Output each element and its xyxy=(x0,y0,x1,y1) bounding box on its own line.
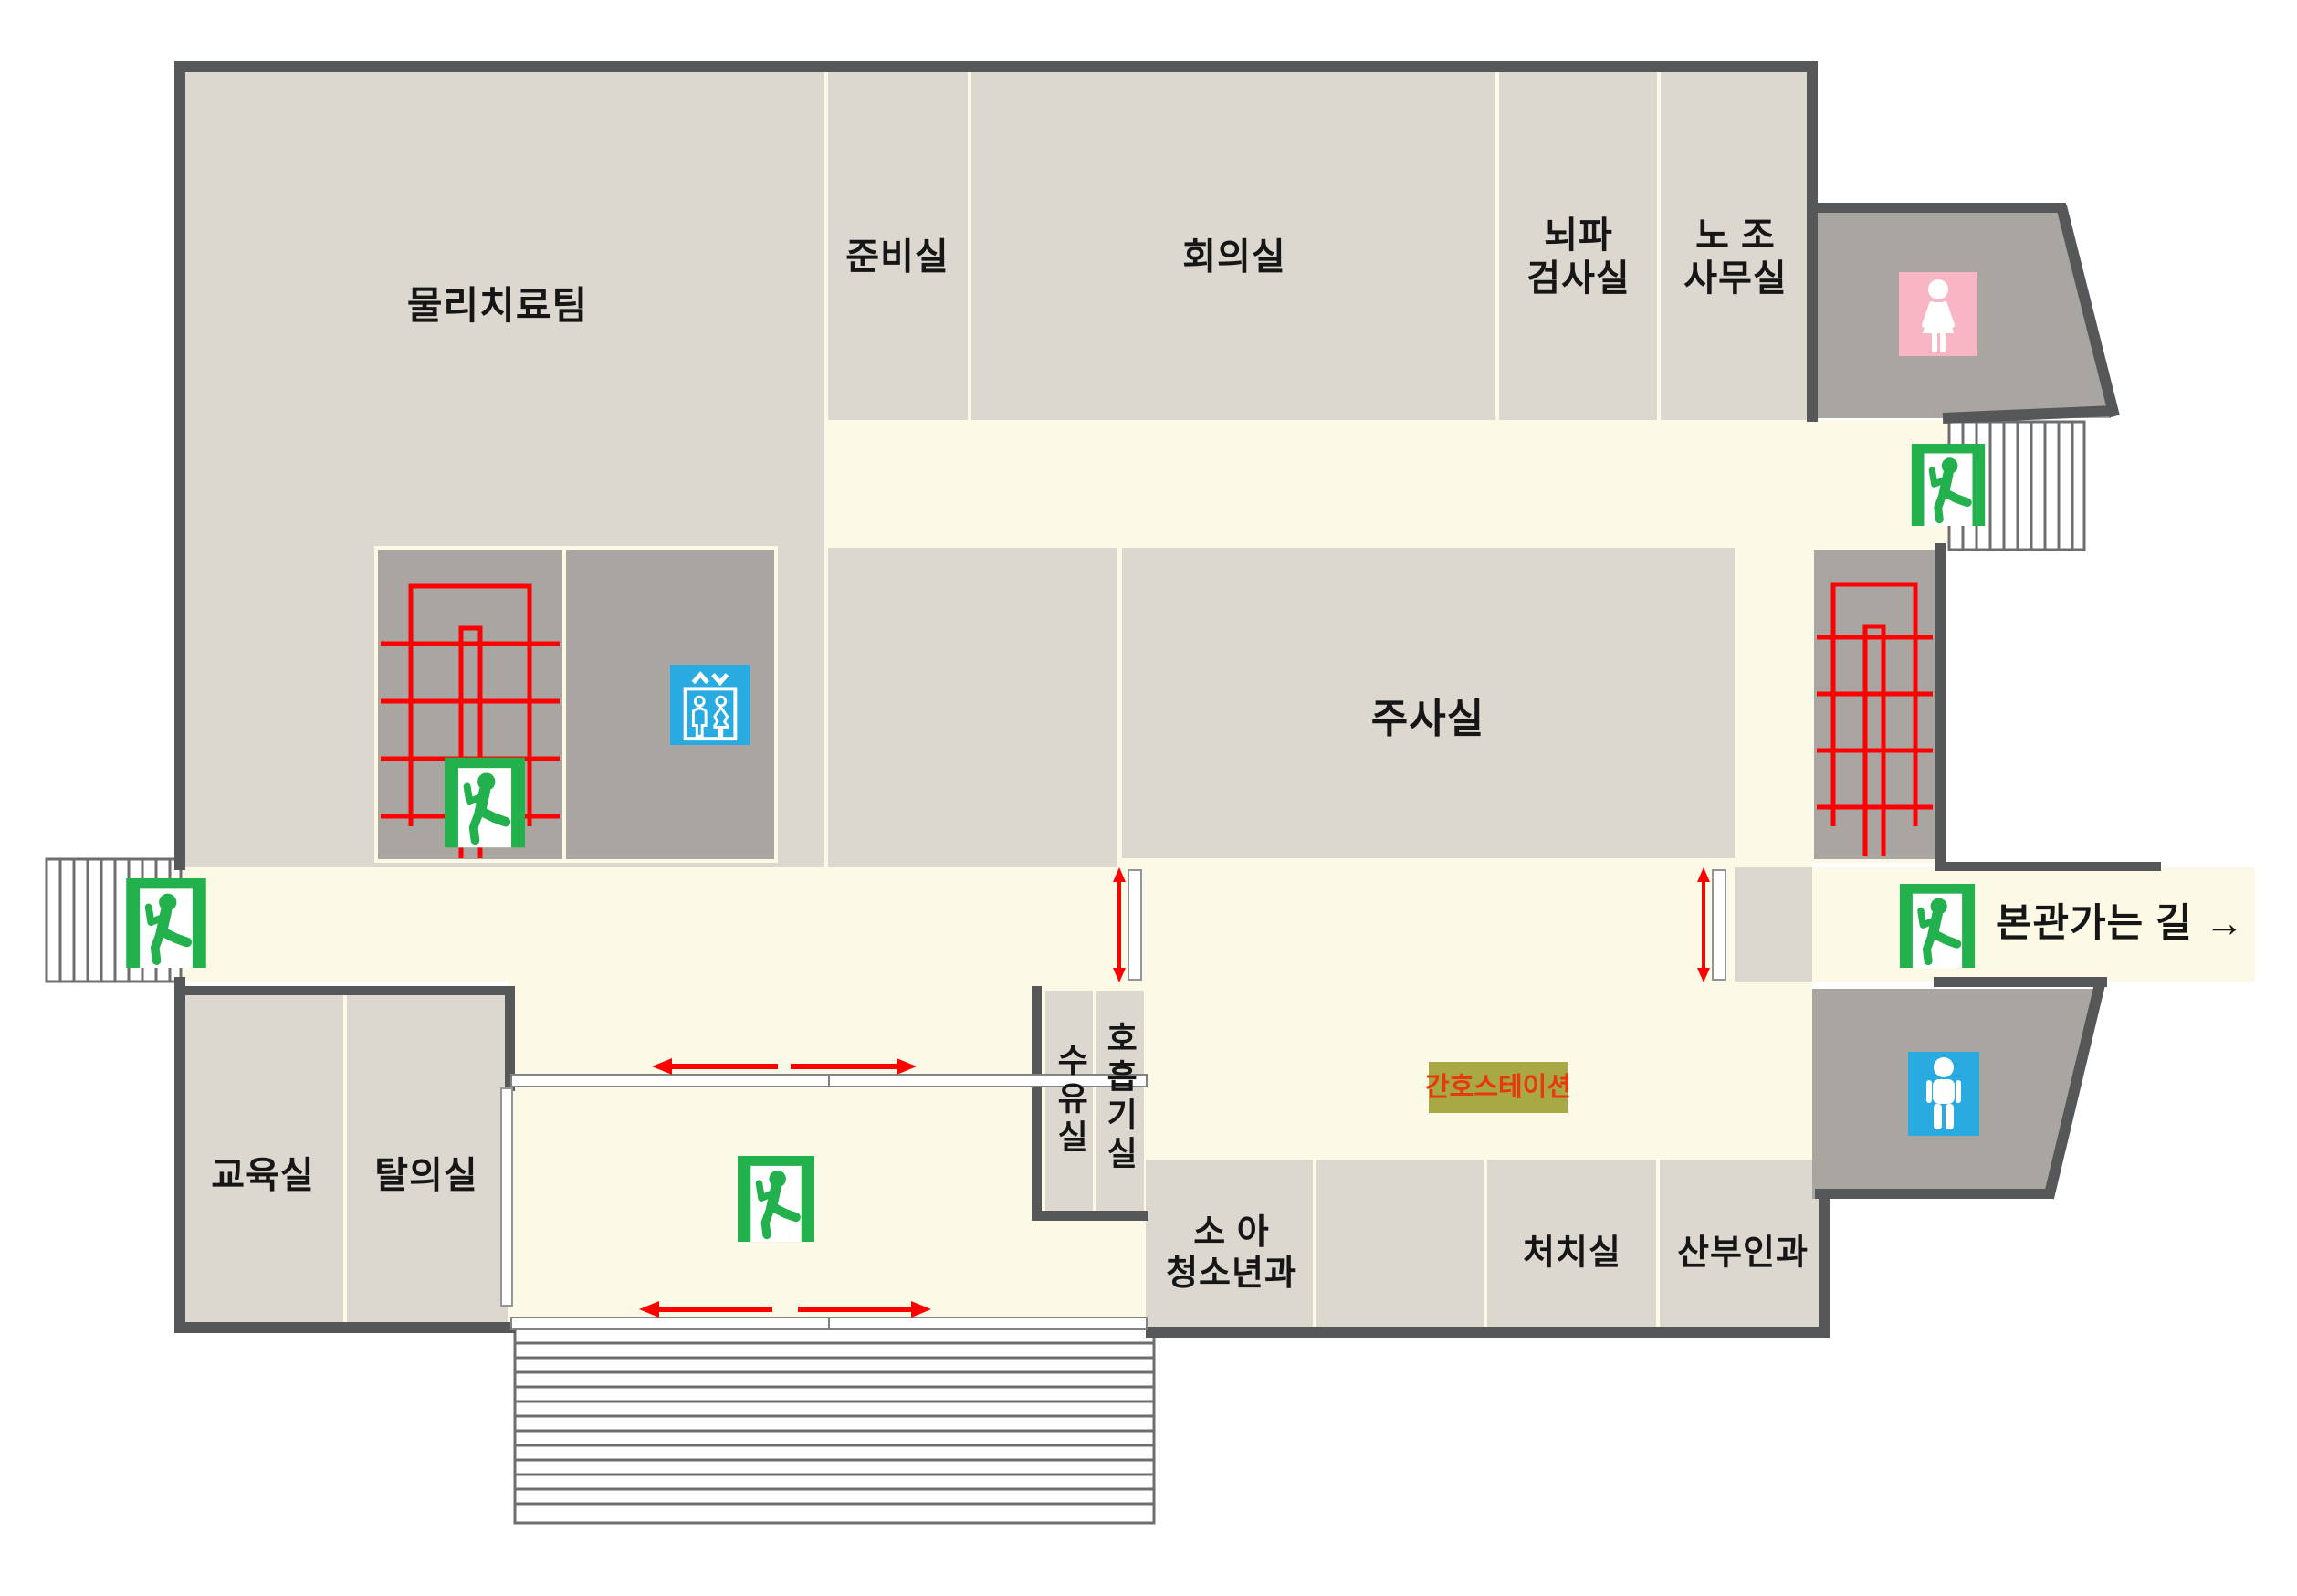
room-label-education: 교육실 xyxy=(211,1154,314,1197)
nurse-station-label: 간호스테이션 xyxy=(1425,1072,1571,1103)
room-label-union: 노 조 사무실 xyxy=(1683,215,1787,300)
female-toilet-icon xyxy=(1899,272,1977,356)
room-label-obgyn: 산부인과 xyxy=(1677,1234,1809,1275)
injection-right-door xyxy=(1713,870,1725,980)
room-label-eeg: 뇌파 검사실 xyxy=(1526,215,1630,300)
exit-man-icon xyxy=(738,1156,814,1242)
room-label-changing: 탈의실 xyxy=(374,1154,477,1197)
room-label-meeting: 회의실 xyxy=(1182,236,1285,278)
top-corridor-shape xyxy=(826,420,1949,548)
elevator-icon xyxy=(670,665,750,745)
room-label-injection: 주사실 xyxy=(1371,696,1484,743)
floor-plan: 물리치료팀 준비실 회의실 뇌파 검사실 노 조 사무실 주사실 교육실 탈의실… xyxy=(0,0,2297,1596)
room-label-treatment: 처치실 xyxy=(1523,1234,1621,1275)
external-stairs-bottom xyxy=(515,1328,1154,1523)
exit-man-icon xyxy=(1912,444,1985,526)
room-label-nursing: 수유실 xyxy=(1051,1043,1089,1158)
room-unlabeled-left-shape xyxy=(826,548,1117,867)
exit-man-icon xyxy=(126,878,206,968)
room-label-prep: 준비실 xyxy=(845,236,949,278)
top-room-row-shape xyxy=(826,66,1812,420)
exit-man-icon xyxy=(445,758,525,848)
room-label-pediatrics: 소 아 청소년과 xyxy=(1166,1213,1297,1295)
to-main-building-label: 본관가는 길 → xyxy=(1996,901,2245,948)
exit-man-icon xyxy=(1900,884,1975,968)
floor-plan-drawing xyxy=(0,0,2297,1596)
room-label-physio: 물리치료팀 xyxy=(407,283,588,329)
room-label-respiratory: 호흡기실 xyxy=(1100,1021,1138,1174)
male-toilet-icon xyxy=(1908,1052,1979,1136)
injection-left-door xyxy=(1128,870,1141,980)
changing-room-door xyxy=(501,1088,512,1306)
room-small-right-shape xyxy=(1735,867,1812,982)
